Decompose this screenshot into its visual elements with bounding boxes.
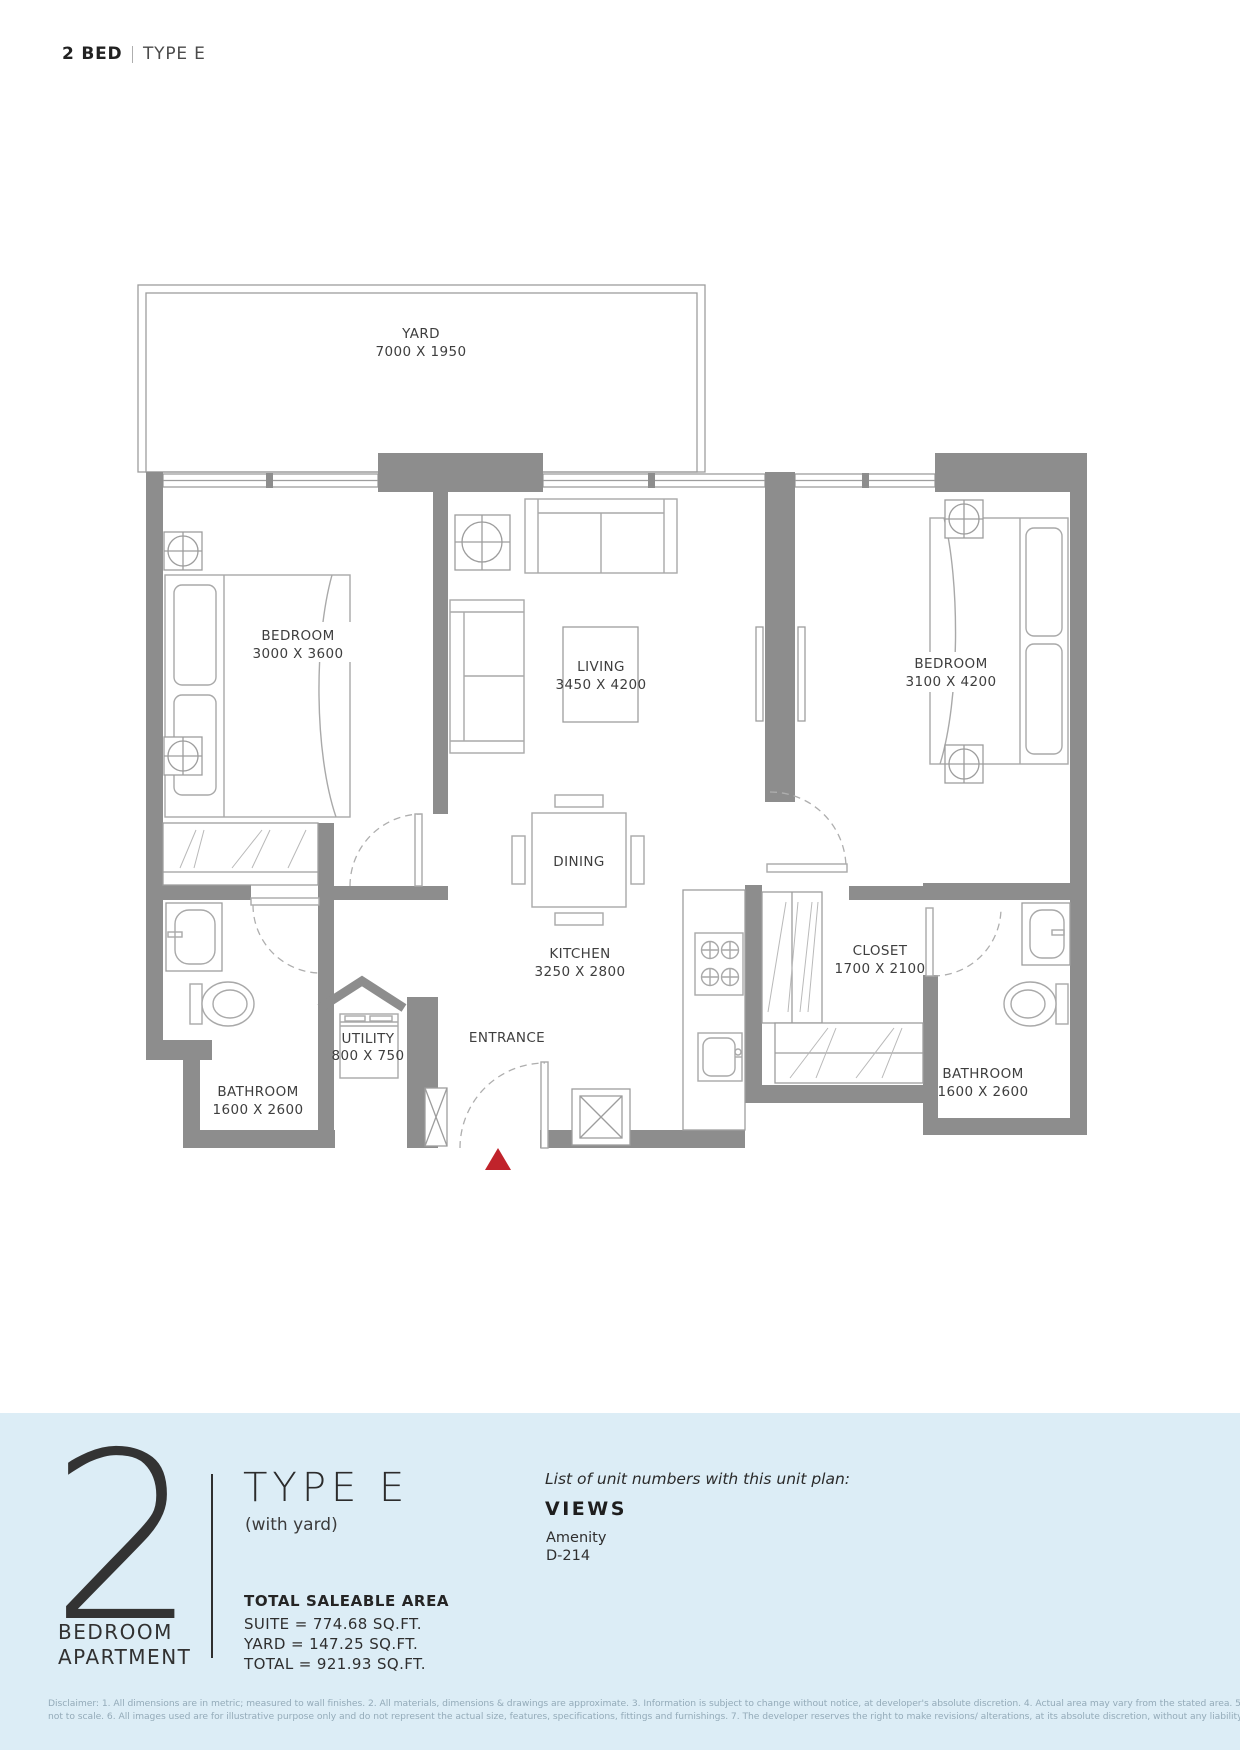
- closet-wardrobe-vertical: [762, 892, 822, 1023]
- utility-label: UTILITY: [342, 1031, 395, 1047]
- ceiling-light-icon: [455, 515, 510, 570]
- wardrobe1: [163, 823, 318, 885]
- unit-label-line1: BEDROOM: [58, 1620, 173, 1644]
- kitchen-dims: 3250 X 2800: [535, 964, 626, 980]
- kitchen-sink-icon: [698, 1033, 742, 1081]
- ceiling-light-icon: [945, 745, 983, 783]
- bathroom2: BATHROOM 1600 X 2600: [926, 903, 1070, 1100]
- entrance-door-arc: [460, 1063, 545, 1148]
- closet-dims: 1700 X 2100: [835, 961, 926, 977]
- bathroom2-label: BATHROOM: [942, 1066, 1023, 1082]
- bedroom1-label: BEDROOM: [261, 628, 334, 644]
- living-label: LIVING: [577, 659, 625, 675]
- kitchen-counter: [683, 890, 745, 1130]
- disclaimer-line2: not to scale. 6. All images used are for…: [48, 1711, 1208, 1722]
- entry-marker-icon: [485, 1148, 511, 1170]
- building-name: VIEWS: [545, 1498, 627, 1520]
- bathroom1-door-leaf: [251, 898, 319, 905]
- dining-label: DINING: [553, 854, 604, 870]
- window-band: [163, 473, 935, 488]
- sink-icon: [166, 903, 222, 971]
- yard-dims: 7000 X 1950: [376, 344, 467, 360]
- bedroom2-label: BEDROOM: [914, 656, 987, 672]
- bedroom2: BEDROOM 3100 X 4200: [767, 500, 1068, 872]
- entrance-label: ENTRANCE: [469, 1030, 545, 1046]
- dining-area: DINING KITCHEN 3250 X 2800: [512, 795, 644, 980]
- bathroom1-door-arc: [253, 905, 319, 973]
- bedroom1-door-leaf: [415, 814, 422, 886]
- bathroom1-label: BATHROOM: [217, 1084, 298, 1100]
- bathroom2-dims: 1600 X 2600: [938, 1084, 1029, 1100]
- shaft-box-icon: [572, 1089, 630, 1145]
- sink-icon: [1022, 903, 1070, 965]
- entrance: ENTRANCE: [425, 1030, 630, 1170]
- closet-wardrobe-horizontal: [775, 1023, 923, 1083]
- ceiling-light-icon: [164, 532, 202, 570]
- bed2: [930, 518, 1068, 764]
- bathroom2-door-arc: [933, 908, 1001, 976]
- bathroom1-dims: 1600 X 2600: [213, 1102, 304, 1118]
- kitchen-label: KITCHEN: [549, 946, 610, 962]
- bathroom2-door-leaf: [926, 908, 933, 976]
- bedroom1: BEDROOM 3000 X 3600: [163, 532, 422, 886]
- sofa-top: [525, 499, 677, 573]
- living-dims: 3450 X 4200: [556, 677, 647, 693]
- entrance-door-leaf: [541, 1062, 548, 1148]
- footer-divider: [211, 1474, 213, 1658]
- utility-dims: 800 X 750: [332, 1048, 405, 1064]
- bedroom2-dims: 3100 X 4200: [906, 674, 997, 690]
- hall-door-arc: [770, 792, 846, 868]
- floor-plan: YARD 7000 X 1950: [0, 0, 1240, 1230]
- yard-label: YARD: [401, 326, 440, 342]
- area-line-total: TOTAL = 921.93 SQ.FT.: [244, 1655, 426, 1673]
- stove-icon: [695, 933, 743, 995]
- ceiling-light-icon: [164, 737, 202, 775]
- ceiling-light-icon: [945, 500, 983, 538]
- sofa-left: [450, 600, 524, 753]
- bed1: [165, 575, 350, 817]
- sliding-door-leaf: [756, 627, 763, 721]
- yard-area: YARD 7000 X 1950: [138, 285, 705, 472]
- shaft-column-icon: [425, 1088, 447, 1146]
- closet: CLOSET 1700 X 2100: [762, 892, 925, 1083]
- unit-list-item: Amenity: [546, 1530, 606, 1546]
- area-heading: TOTAL SALEABLE AREA: [244, 1592, 449, 1610]
- units-list-heading: List of unit numbers with this unit plan…: [545, 1470, 850, 1488]
- sliding-door-leaf: [798, 627, 805, 721]
- utility: UTILITY 800 X 750: [332, 1014, 405, 1078]
- unit-label-line2: APARTMENT: [58, 1645, 191, 1669]
- bedroom1-door-arc: [350, 814, 422, 886]
- closet-label: CLOSET: [853, 943, 908, 959]
- area-line-suite: SUITE = 774.68 SQ.FT.: [244, 1615, 422, 1633]
- toilet-icon: [190, 982, 254, 1026]
- area-line-yard: YARD = 147.25 SQ.FT.: [244, 1635, 418, 1653]
- living-room: LIVING 3450 X 4200: [450, 499, 805, 753]
- hall-door-leaf: [767, 864, 847, 872]
- bedroom1-dims: 3000 X 3600: [253, 646, 344, 662]
- type-subtitle: (with yard): [245, 1515, 338, 1535]
- toilet-icon: [1004, 982, 1068, 1026]
- unit-list-item: D-214: [546, 1548, 590, 1564]
- disclaimer-line1: Disclaimer: 1. All dimensions are in met…: [48, 1698, 1208, 1709]
- type-title: TYPE E: [243, 1465, 409, 1511]
